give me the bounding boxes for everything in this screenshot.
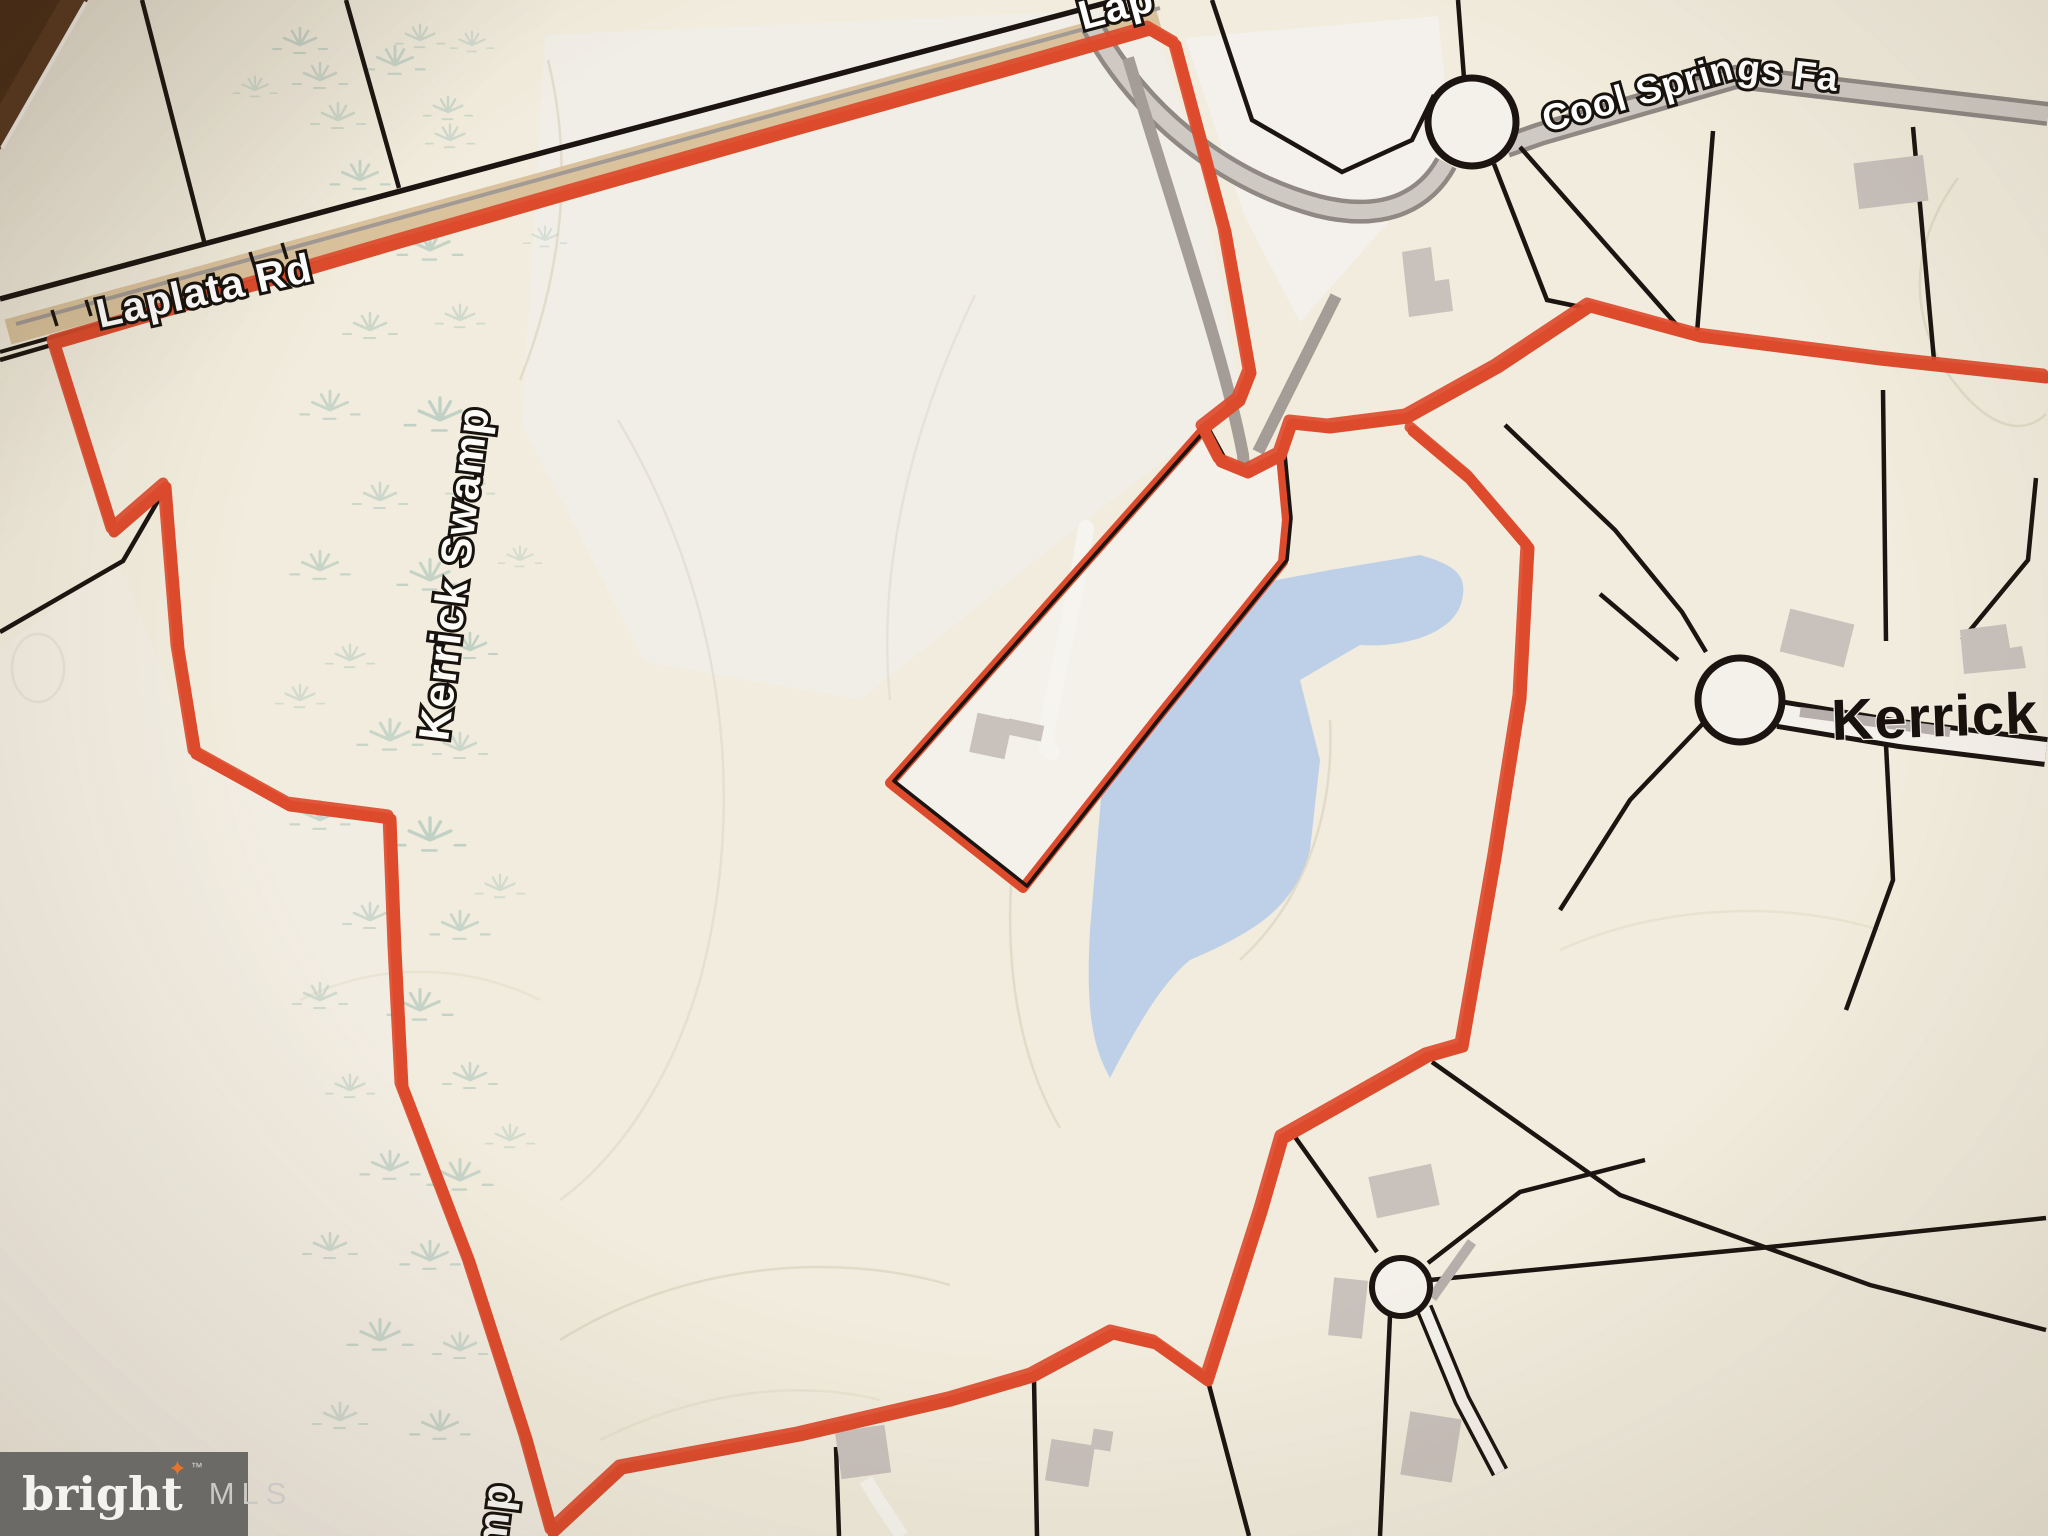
house — [835, 1425, 891, 1479]
bright-logo: bright ✦ ™ — [22, 1471, 183, 1517]
bright-wordmark: bright — [22, 1467, 183, 1521]
star-icon: ✦ — [168, 1459, 186, 1481]
cul-de-sac — [1372, 1258, 1430, 1316]
map-photo: Laplata Rd Lap Cool Springs Fa Kerrick S… — [0, 0, 2048, 1536]
house — [1045, 1439, 1095, 1487]
bright-mls-watermark: bright ✦ ™ MLS — [0, 1452, 248, 1536]
house — [1400, 1411, 1461, 1482]
house — [1328, 1277, 1368, 1338]
house — [1091, 1429, 1114, 1452]
mls-wordmark: MLS — [209, 1476, 294, 1512]
kerrick-street-label: Kerrick — [1830, 681, 2039, 753]
cul-de-sac — [1698, 658, 1782, 742]
trademark-symbol: ™ — [191, 1461, 203, 1473]
plat-map: Laplata Rd Lap Cool Springs Fa Kerrick S… — [0, 0, 2048, 1536]
house — [1853, 155, 1928, 209]
cul-de-sac — [1428, 78, 1516, 166]
